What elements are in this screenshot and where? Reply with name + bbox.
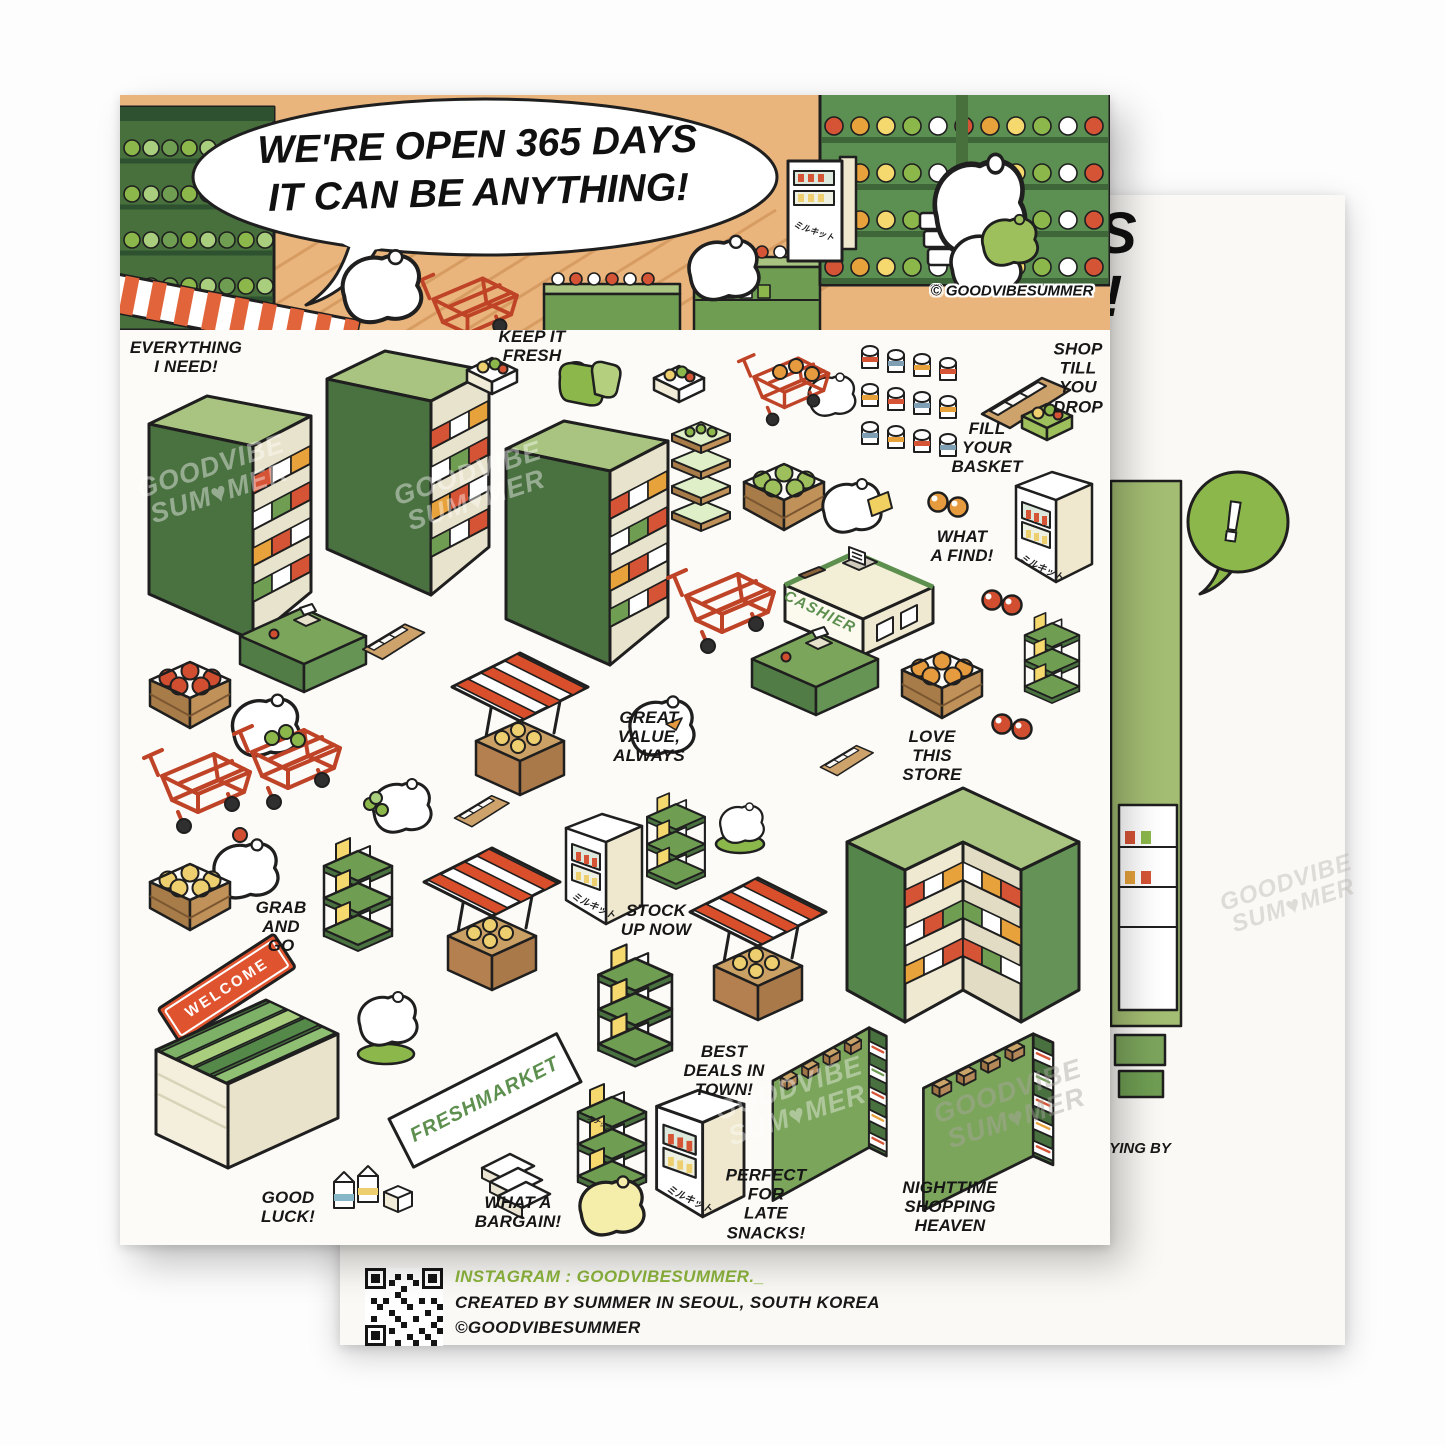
label-shop-till-you-drop: SHOP TILL YOU DROP [1053, 340, 1103, 417]
exclamation-bubble [1180, 462, 1305, 607]
market-stand-illustration [690, 878, 826, 1020]
mascot-blob-illustration [359, 992, 417, 1045]
bottle-shelf-illustration [598, 944, 671, 1066]
mascot-blob-illustration [720, 803, 764, 843]
watermark: GOODVIBE SUM♥MER [1217, 851, 1363, 940]
produce-box-stack-illustration [672, 422, 730, 531]
label-nighttime-shopping-heaven: NIGHTTIME SHOPPING HEAVEN [902, 1178, 997, 1236]
display-rack-illustration [647, 793, 705, 889]
produce-crate-illustration [744, 464, 824, 530]
label-love-this-store: LOVE THIS STORE [902, 727, 961, 785]
milk-cartons-illustration [334, 1166, 412, 1212]
market-stand-illustration [424, 848, 560, 990]
label-perfect-for-late-snacks: PERFECT FOR LATE SNACKS! [726, 1166, 807, 1243]
pallet-illustration [454, 796, 509, 827]
speech-bubble-text: WE'RE OPEN 365 DAYS IT CAN BE ANYTHING! [127, 112, 829, 225]
qr-code [365, 1268, 443, 1346]
label-keep-it-fresh: KEEP IT FRESH [499, 327, 566, 365]
label-grab-and-go: GRAB AND GO [256, 898, 307, 956]
fruit-illustration [993, 715, 1032, 739]
label-best-deals-in-town: BEST DEALS IN TOWN! [684, 1042, 765, 1100]
basket-illustration [654, 366, 704, 402]
label-everything-i-need: EVERYTHING I NEED! [130, 338, 242, 376]
produce-crate-illustration [150, 864, 230, 930]
footer-created-by: CREATED BY SUMMER IN SEOUL, SOUTH KOREA [455, 1293, 880, 1313]
jar-grid-illustration [862, 346, 956, 456]
label-what-a-bargain: WHAT A BARGAIN! [475, 1193, 562, 1231]
label-what-a-find: WHAT A FIND! [930, 527, 993, 565]
snack-shelf-illustration [578, 1084, 646, 1197]
fruit-illustration [983, 591, 1022, 615]
ladder-illustration [363, 624, 425, 659]
grocery-bags-illustration [560, 362, 621, 405]
display-rack-illustration [1025, 613, 1079, 703]
artist-credit: © GOODVIBESUMMER [931, 283, 1094, 300]
label-great-value-always: GREAT VALUE, ALWAYS [613, 708, 685, 766]
display-rack-illustration [324, 838, 392, 951]
shopping-cart-illustration [668, 570, 774, 653]
label-good-luck: GOOD LUCK! [261, 1188, 315, 1226]
market-stand-illustration [452, 653, 588, 795]
footer-instagram: INSTAGRAM : GOODVIBESUMMER._ [455, 1267, 764, 1287]
fruit-illustration [929, 493, 968, 517]
produce-crate-illustration [150, 662, 230, 728]
front-sticker-sheet: WE'RE OPEN 365 DAYS IT CAN BE ANYTHING! … [120, 95, 1110, 1245]
label-fill-your-basket: FILL YOUR BASKET [951, 419, 1022, 477]
produce-crate-illustration [902, 652, 982, 718]
label-stock-up-now: STOCK UP NOW [621, 901, 691, 939]
ladder-illustration [820, 746, 873, 776]
shopping-cart-illustration [144, 750, 250, 833]
red-dot-illustration [233, 828, 247, 842]
corner-shelf-illustration [847, 788, 1079, 1022]
footer-copyright: ©GOODVIBESUMMER [455, 1318, 641, 1338]
